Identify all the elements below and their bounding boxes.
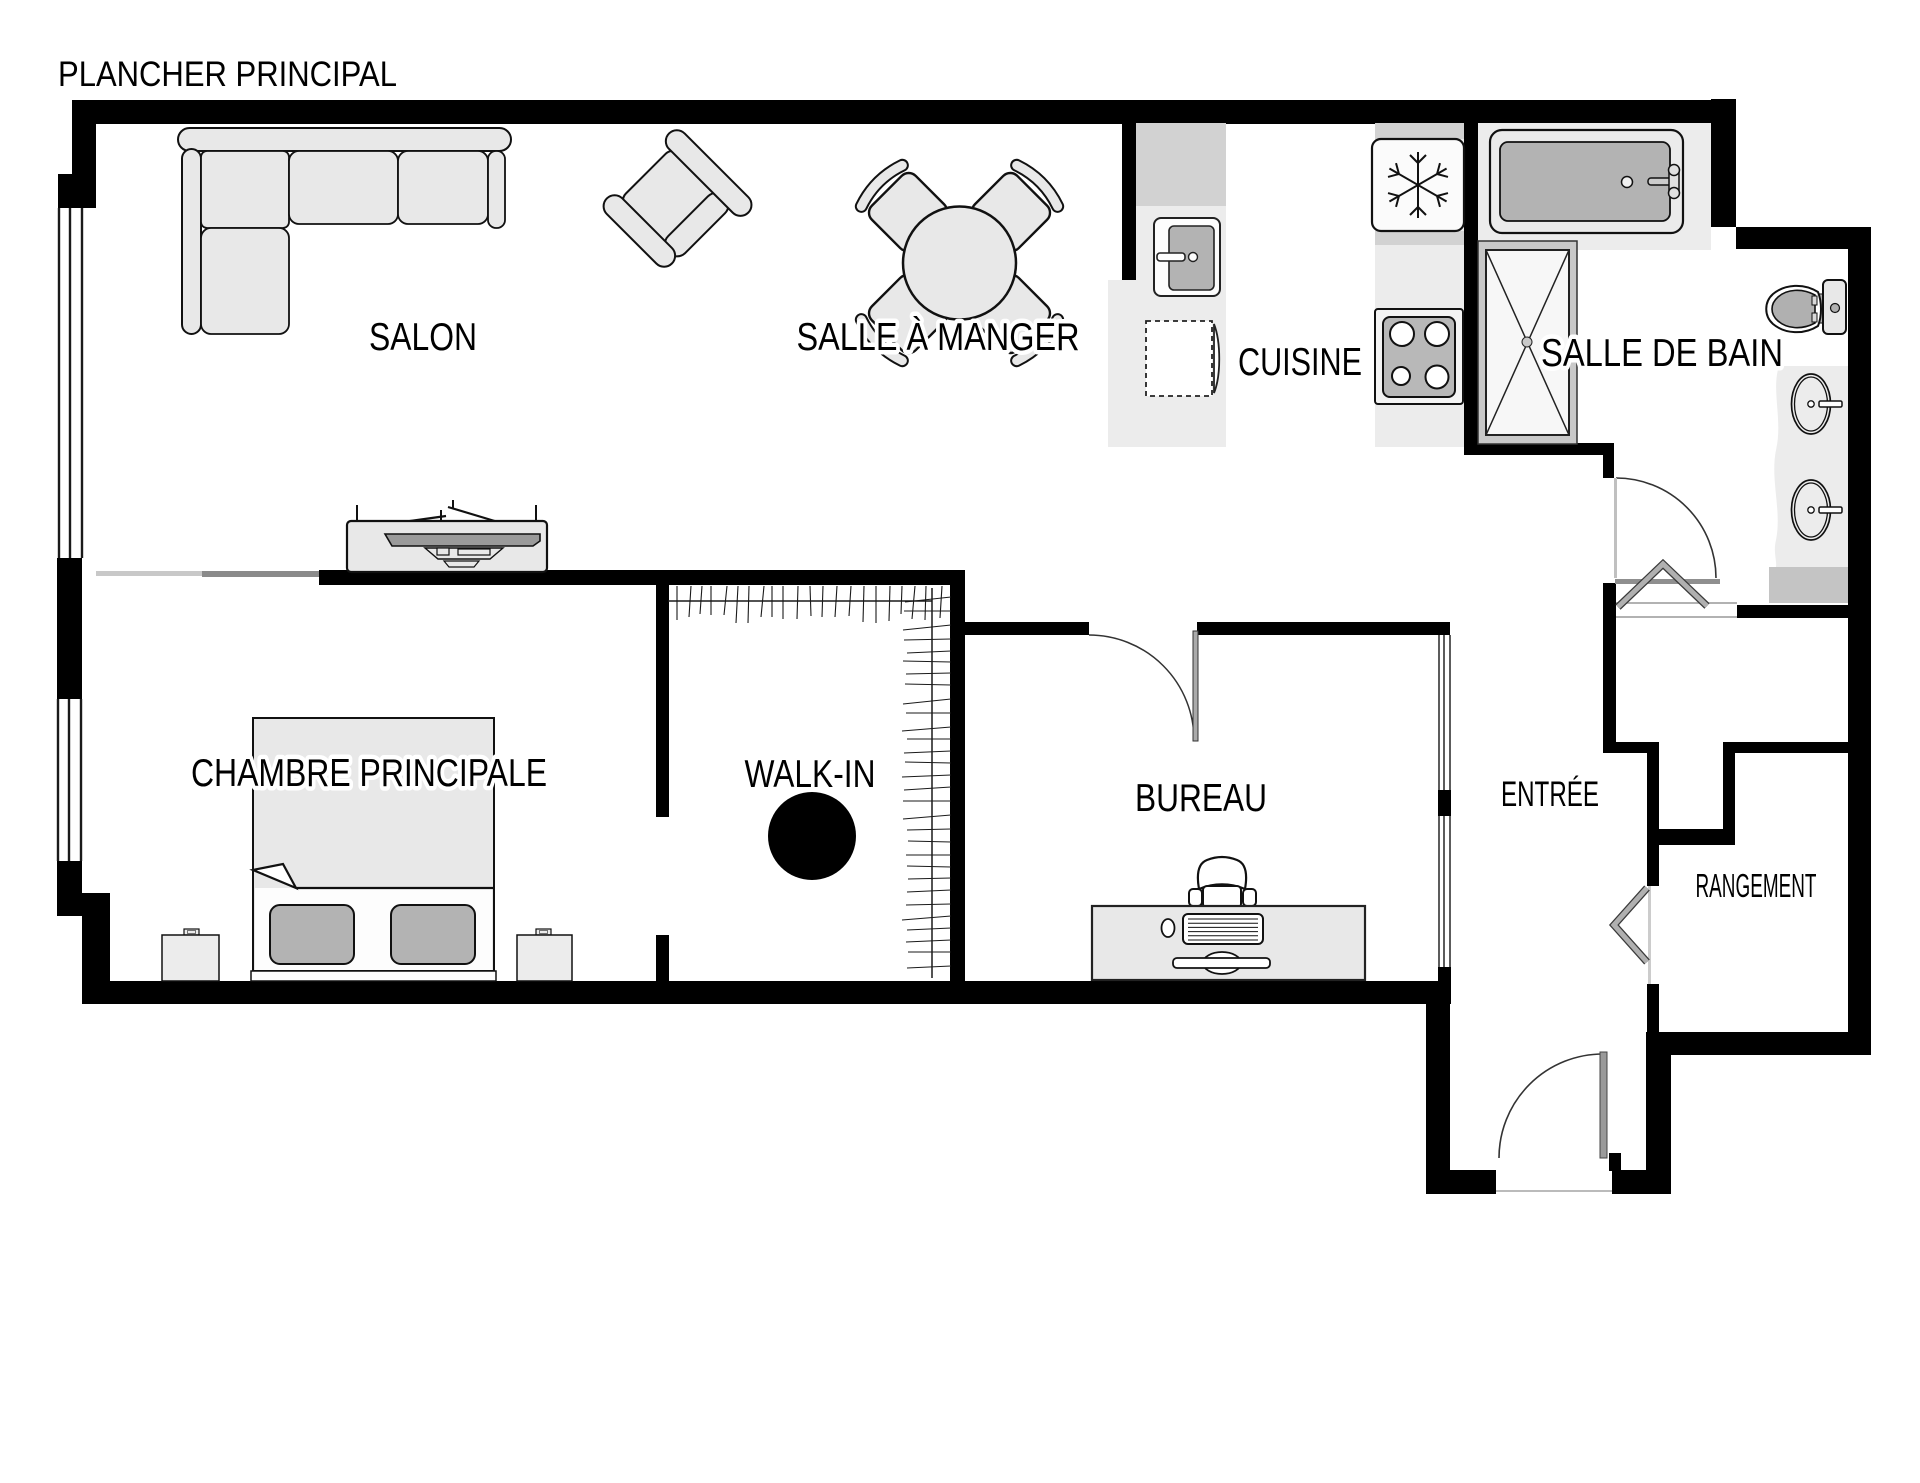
svg-text:CUISINE: CUISINE	[1238, 341, 1362, 384]
svg-text:SALLE À MANGER: SALLE À MANGER	[797, 316, 1080, 359]
svg-text:ENTRÉE: ENTRÉE	[1501, 775, 1599, 814]
svg-text:RANGEMENT: RANGEMENT	[1696, 867, 1817, 904]
svg-text:WALK-IN: WALK-IN	[745, 753, 876, 796]
svg-text:SALON: SALON	[369, 316, 477, 359]
svg-text:PLANCHER PRINCIPAL: PLANCHER PRINCIPAL	[58, 55, 397, 94]
svg-text:SALLE DE BAIN: SALLE DE BAIN	[1541, 332, 1783, 375]
svg-text:CHAMBRE PRINCIPALE: CHAMBRE PRINCIPALE	[191, 752, 547, 795]
svg-text:BUREAU: BUREAU	[1135, 777, 1267, 820]
